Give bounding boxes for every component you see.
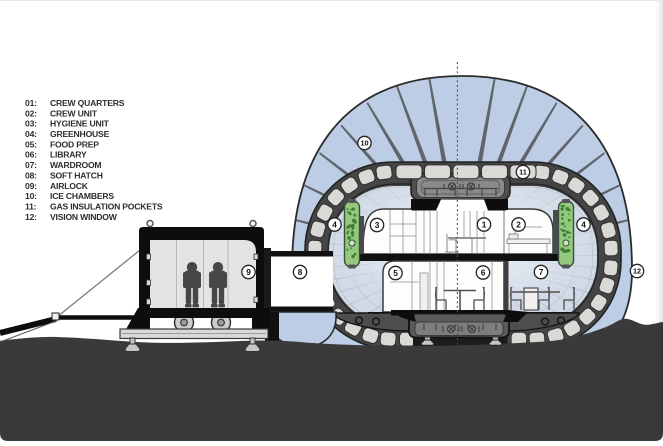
svg-text:07:: 07:: [25, 160, 37, 170]
svg-text:LIBRARY: LIBRARY: [50, 150, 87, 160]
svg-text:11:: 11:: [25, 202, 37, 212]
svg-text:CREW QUARTERS: CREW QUARTERS: [50, 98, 125, 108]
svg-text:VISION WINDOW: VISION WINDOW: [50, 212, 118, 222]
svg-text:6: 6: [481, 268, 486, 278]
svg-text:GAS INSULATION POCKETS: GAS INSULATION POCKETS: [50, 202, 163, 212]
svg-text:02:: 02:: [25, 108, 37, 118]
svg-text:09:: 09:: [25, 181, 37, 191]
svg-text:04:: 04:: [25, 129, 37, 139]
svg-text:CREW UNIT: CREW UNIT: [50, 108, 98, 118]
svg-text:FOOD PREP: FOOD PREP: [50, 139, 99, 149]
svg-text:AIRLOCK: AIRLOCK: [50, 181, 89, 191]
svg-text:WARDROOM: WARDROOM: [50, 160, 101, 170]
svg-text:5: 5: [393, 268, 398, 278]
svg-text:12: 12: [633, 267, 641, 276]
svg-text:2: 2: [516, 220, 521, 230]
svg-text:01:: 01:: [25, 98, 37, 108]
svg-text:12:: 12:: [25, 212, 37, 222]
svg-text:4: 4: [581, 220, 586, 230]
svg-text:9: 9: [246, 267, 251, 277]
svg-text:4: 4: [332, 220, 337, 230]
svg-text:SOFT HATCH: SOFT HATCH: [50, 170, 103, 180]
svg-text:HYGIENE UNIT: HYGIENE UNIT: [50, 119, 110, 129]
svg-text:05:: 05:: [25, 139, 37, 149]
svg-text:10: 10: [360, 139, 368, 148]
svg-text:8: 8: [298, 267, 303, 277]
svg-text:08:: 08:: [25, 170, 37, 180]
svg-text:7: 7: [539, 267, 544, 277]
svg-text:3: 3: [375, 220, 380, 230]
svg-text:10:: 10:: [25, 191, 37, 201]
svg-text:11: 11: [519, 168, 527, 177]
svg-text:03:: 03:: [25, 119, 37, 129]
svg-text:1: 1: [482, 220, 487, 230]
svg-text:GREENHOUSE: GREENHOUSE: [50, 129, 110, 139]
svg-text:06:: 06:: [25, 150, 37, 160]
svg-text:ICE CHAMBERS: ICE CHAMBERS: [50, 191, 114, 201]
